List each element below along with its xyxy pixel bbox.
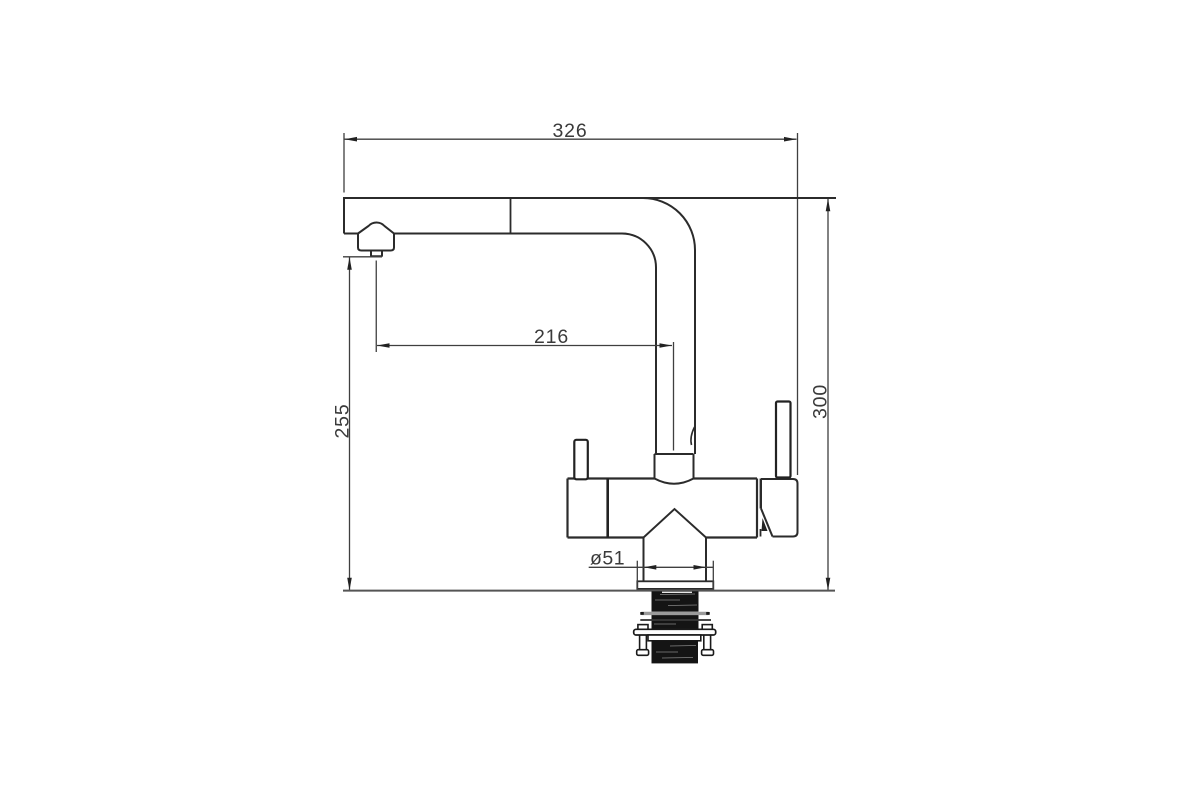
svg-text:300: 300: [809, 384, 831, 419]
svg-text:ø51: ø51: [590, 548, 625, 570]
svg-text:216: 216: [534, 326, 569, 348]
svg-text:326: 326: [553, 120, 588, 142]
svg-text:255: 255: [331, 404, 353, 439]
